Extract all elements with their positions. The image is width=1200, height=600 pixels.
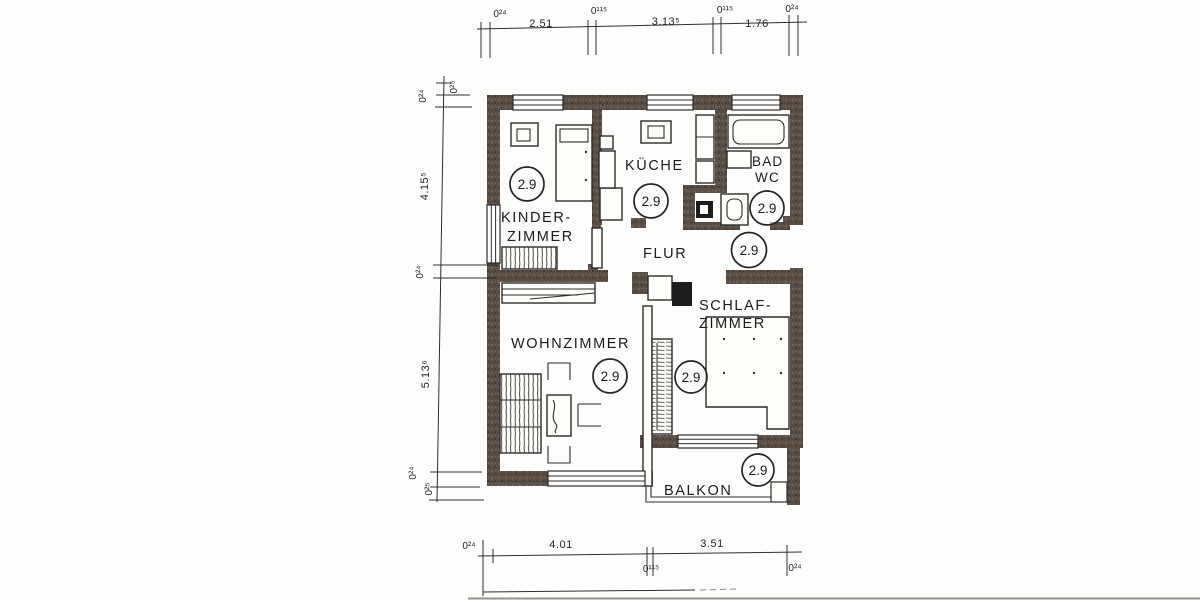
dim-bottom-4: 0²⁴ bbox=[788, 563, 801, 574]
window-kinderzimmer-top bbox=[513, 95, 563, 110]
door-leaf-kueche bbox=[600, 188, 622, 220]
wall-kueche-bad bbox=[715, 110, 727, 185]
dim-left-0: 0²⁴ bbox=[418, 89, 429, 102]
bed-dot bbox=[585, 179, 587, 181]
label-bad: BAD bbox=[752, 154, 783, 169]
label-schlafzimmer-1: SCHLAF- bbox=[699, 298, 772, 314]
kueche-furniture bbox=[599, 115, 714, 188]
floorplan-canvas: KINDER- ZIMMER KÜCHE BAD WC FLUR WOHNZIM… bbox=[0, 0, 1200, 600]
kinderzimmer-wardrobe bbox=[502, 247, 557, 269]
dim-bottom-0: 0²⁴ bbox=[462, 541, 475, 552]
chair-top bbox=[548, 363, 570, 380]
dim-top-0: 0²⁴ bbox=[493, 9, 506, 20]
kueche-shaft-notch bbox=[700, 205, 708, 214]
dim-top-1: 2.51 bbox=[529, 18, 552, 30]
schlafzimmer-bed bbox=[706, 317, 789, 429]
window-kueche-top bbox=[647, 95, 693, 110]
dimension-chain-top: 0²⁴ 2.51 0¹¹⁵ 3.13⁵ 0¹¹⁵ 1.76 0²⁴ bbox=[477, 4, 807, 58]
window-schlafzimmer-balkon bbox=[678, 435, 758, 448]
dim-left-3: 0²⁴ bbox=[415, 265, 426, 278]
label-wohnzimmer: WOHNZIMMER bbox=[511, 336, 630, 352]
wohnzimmer-furniture bbox=[500, 283, 601, 463]
kinderzimmer-bed bbox=[556, 125, 592, 201]
wall-kinderzimmer-wohnzimmer bbox=[487, 270, 608, 282]
balkon-right-return bbox=[771, 482, 787, 502]
dim-top-2: 0¹¹⁵ bbox=[591, 6, 607, 17]
dim-top-6: 0²⁴ bbox=[785, 4, 798, 15]
duct-block-left bbox=[632, 272, 648, 294]
label-wc: WC bbox=[755, 170, 780, 185]
dim-left-5: 0²⁴ bbox=[408, 466, 419, 479]
dim-left-1: 0²⁵ bbox=[449, 80, 460, 93]
kueche-counter-small bbox=[600, 136, 613, 149]
bed-dot bbox=[780, 338, 782, 340]
height-value: 2.9 bbox=[740, 243, 759, 258]
bed-dot bbox=[723, 372, 725, 374]
couch bbox=[500, 374, 541, 453]
height-value: 2.9 bbox=[642, 194, 661, 209]
dimension-chain-left: 0²⁴ 0²⁵ 4.15⁵ 0²⁴ 5.13⁶ 0²⁴ 0²⁵ bbox=[408, 76, 497, 502]
schlafzimmer-wardrobe bbox=[652, 339, 672, 434]
wall-wc-top bbox=[683, 185, 727, 193]
window-wohnzimmer-bottom bbox=[548, 471, 645, 486]
dim-left-4: 5.13⁶ bbox=[420, 360, 432, 388]
height-value: 2.9 bbox=[518, 177, 537, 192]
dimension-chain-bottom: 0²⁴ 4.01 0¹¹⁵ 3.51 0²⁴ bbox=[462, 538, 802, 596]
wall-kueche-flur-b bbox=[631, 218, 646, 228]
window-kinderzimmer-left bbox=[487, 205, 500, 263]
window-bad-top bbox=[732, 95, 780, 110]
chair-right bbox=[578, 404, 601, 426]
dim-top-5: 1.76 bbox=[745, 18, 768, 30]
dim-left-6: 0²⁵ bbox=[424, 482, 435, 495]
dim-top-4: 0¹¹⁵ bbox=[717, 5, 733, 16]
wall-left bbox=[487, 95, 500, 486]
bed-dot bbox=[753, 338, 755, 340]
sideboard bbox=[502, 283, 595, 303]
height-value: 2.9 bbox=[682, 370, 701, 385]
kinderzimmer-washbasin bbox=[511, 123, 538, 146]
kueche-counter-left bbox=[599, 151, 615, 188]
kueche-sink bbox=[641, 121, 671, 143]
height-value: 2.9 bbox=[758, 201, 777, 216]
height-value: 2.9 bbox=[601, 369, 620, 384]
schlafzimmer-furniture bbox=[652, 317, 789, 434]
label-balkon: BALKON bbox=[664, 483, 732, 499]
label-flur: FLUR bbox=[643, 246, 687, 262]
dim-bottom-3: 3.51 bbox=[700, 538, 723, 550]
dim-bottom-2: 0¹¹⁵ bbox=[643, 564, 659, 575]
bad-washbasin bbox=[727, 151, 751, 168]
wall-flur-schlafzimmer bbox=[726, 270, 803, 284]
duct-solid-shaft bbox=[672, 282, 692, 306]
kueche-cabinet-lower bbox=[696, 161, 714, 183]
duct-open-shaft bbox=[648, 276, 672, 300]
bed-dot bbox=[723, 338, 725, 340]
bed-dot bbox=[585, 151, 587, 153]
dim-top-3: 3.13⁵ bbox=[652, 16, 680, 28]
coffee-table bbox=[547, 395, 571, 436]
dim-bottom-1: 4.01 bbox=[549, 539, 572, 551]
label-kinderzimmer-1: KINDER- bbox=[501, 210, 572, 226]
dim-left-2: 4.15⁵ bbox=[419, 172, 431, 200]
partition-wohnzimmer-schlafzimmer bbox=[643, 306, 652, 486]
label-schlafzimmer-2: ZIMMER bbox=[699, 316, 766, 332]
door-leaf-kinderzimmer bbox=[592, 228, 602, 268]
label-kueche: KÜCHE bbox=[625, 156, 684, 174]
bed-dot bbox=[753, 372, 755, 374]
bed-dot bbox=[780, 372, 782, 374]
wall-right-lower bbox=[790, 268, 803, 448]
wall-right-upper bbox=[790, 95, 803, 225]
height-value: 2.9 bbox=[749, 463, 768, 478]
wall-balkon-right bbox=[787, 448, 800, 505]
chair-bottom bbox=[548, 446, 570, 463]
floorplan-scan: KINDER- ZIMMER KÜCHE BAD WC FLUR WOHNZIM… bbox=[0, 0, 1200, 600]
label-kinderzimmer-2: ZIMMER bbox=[507, 229, 574, 245]
